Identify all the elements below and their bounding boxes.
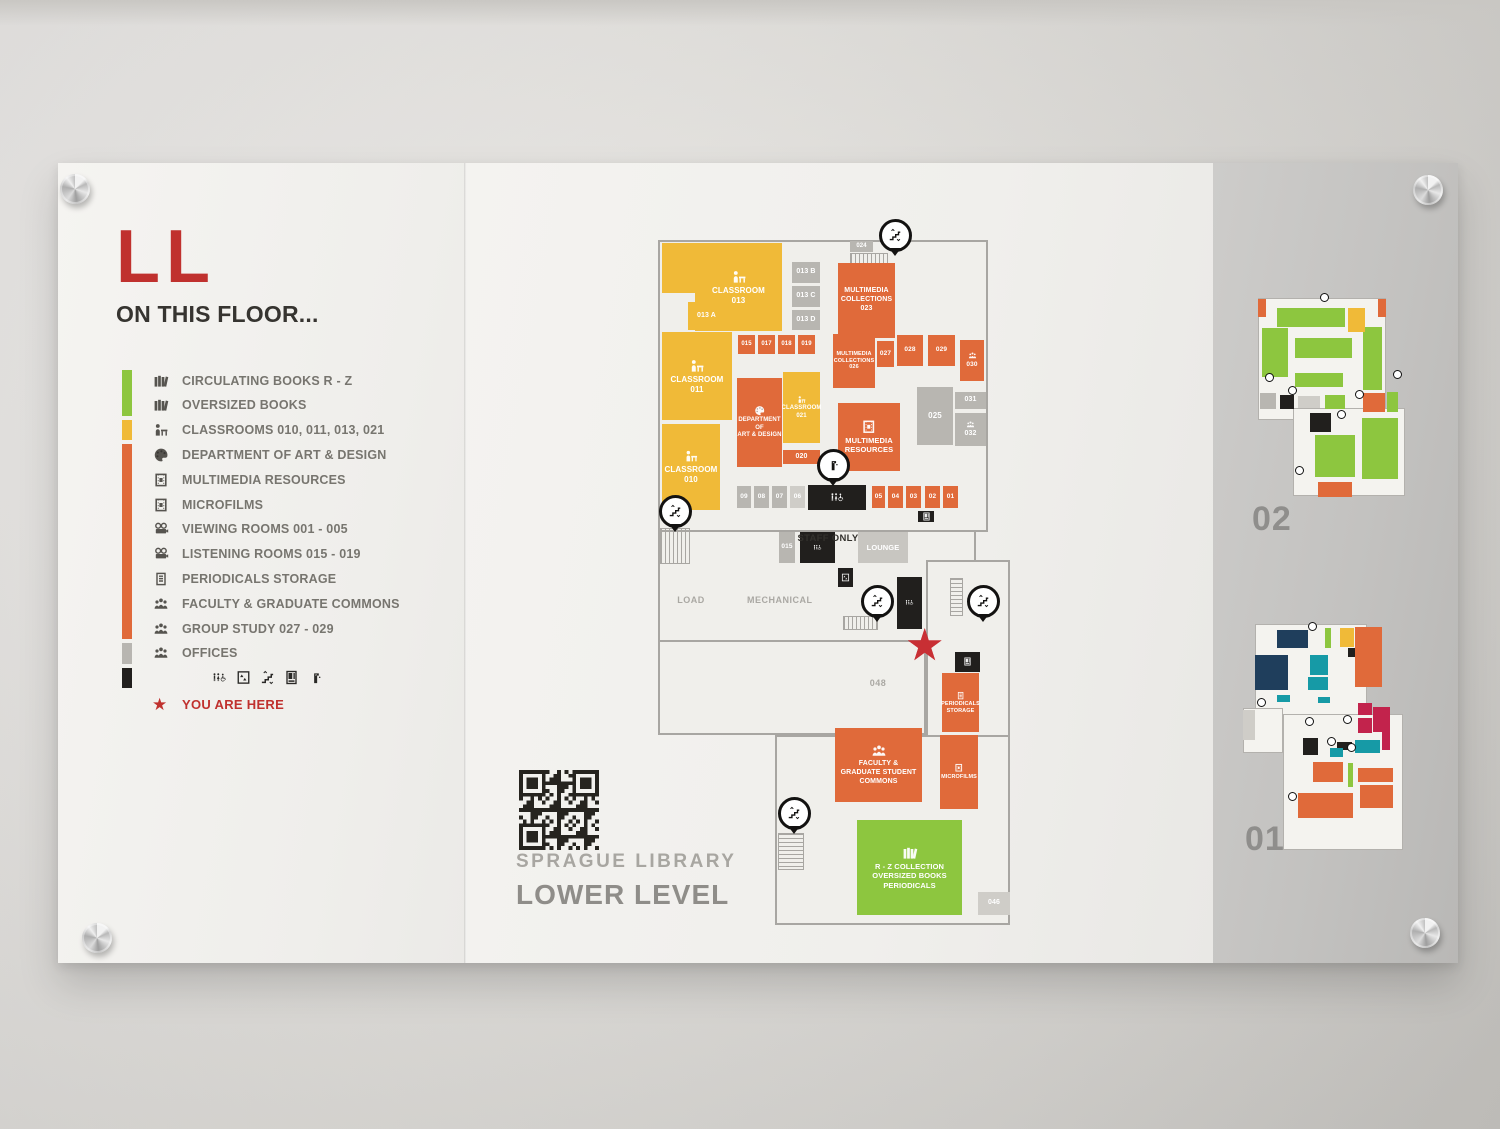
- legend-icon-wrap: [150, 596, 172, 612]
- film-icon: [954, 763, 964, 773]
- stairs-icon: [787, 806, 801, 820]
- minimap-pin: [1288, 792, 1297, 801]
- minimap-room-block: [1298, 793, 1353, 818]
- map-room: MULTIMEDIACOLLECTIONS023: [838, 263, 895, 338]
- legend-color-bar-orange: [122, 444, 132, 638]
- map-room-label: 020: [796, 453, 808, 462]
- legend-row: MICROFILMS: [116, 492, 446, 517]
- map-room: R - Z COLLECTIONOVERSIZED BOOKSPERIODICA…: [857, 820, 962, 915]
- minimap-pin: [1257, 698, 1266, 707]
- minimap-room-block: [1330, 748, 1343, 757]
- classroom-icon: [153, 422, 169, 438]
- books-icon: [902, 845, 918, 861]
- vending-icon: [284, 670, 299, 685]
- people-icon: [968, 351, 977, 360]
- legend-row: DEPARTMENT OF ART & DESIGN: [116, 442, 446, 467]
- minimap-room-block: [1260, 393, 1276, 409]
- map-area-label: 048: [853, 678, 903, 688]
- map-room: 032: [955, 413, 986, 446]
- map-room-label: STORAGE: [947, 708, 975, 715]
- map-room: [955, 652, 980, 672]
- map-room: 018: [778, 335, 795, 354]
- legend-icon-wrap: [150, 571, 172, 587]
- legend-item-label: OFFICES: [182, 646, 238, 660]
- vending-icon: [963, 657, 972, 666]
- map-room: 024: [850, 241, 873, 252]
- map-room: 05: [872, 486, 885, 508]
- legend-item-label: MULTIMEDIA RESOURCES: [182, 473, 346, 487]
- map-room: [838, 568, 853, 587]
- legend-icon-wrap: [150, 621, 172, 637]
- legend-row: VIEWING ROOMS 001 - 005: [116, 517, 446, 542]
- periodical-icon: [153, 571, 169, 587]
- minimap-pin: [1343, 715, 1352, 724]
- panel-seam: [464, 163, 467, 963]
- classroom-icon: [684, 449, 699, 464]
- film-icon: [153, 497, 169, 513]
- map-room-label: CLASSROOM: [782, 405, 822, 413]
- map-room-label: ART & DESIGN: [737, 432, 781, 440]
- legend-color-bar-gray_room: [122, 643, 132, 664]
- minimap-floor-label-02: 02: [1252, 500, 1292, 539]
- legend-row: LISTENING ROOMS 015 - 019: [116, 542, 446, 567]
- map-room: 020: [783, 450, 820, 464]
- legend-icon-wrap: [150, 447, 172, 463]
- minimap-room-block: [1310, 655, 1328, 675]
- minimap-room-block: [1360, 785, 1393, 808]
- map-pin-stairs: [659, 495, 692, 528]
- page-title: ON THIS FLOOR...: [116, 301, 319, 328]
- map-room-label: 046: [988, 899, 1000, 908]
- map-room-label: 015: [741, 341, 751, 349]
- map-room: 013 C: [792, 286, 820, 307]
- map-room-label: OVERSIZED BOOKS: [872, 871, 946, 880]
- vending-icon: [922, 512, 931, 521]
- legend-icon-wrap: [150, 373, 172, 389]
- projector-icon: [153, 521, 169, 537]
- minimap-room-block: [1277, 308, 1345, 327]
- minimap-room-block: [1358, 768, 1393, 782]
- people-icon: [153, 645, 169, 661]
- legend-row: CLASSROOMS 010, 011, 013, 021: [116, 418, 446, 443]
- standoff-bottom-left: [82, 923, 112, 953]
- legend-row: OVERSIZED BOOKS: [116, 393, 446, 418]
- map-room-label: 032: [965, 430, 977, 439]
- minimap-floor-02: [1258, 293, 1408, 503]
- map-room: 013 A: [688, 302, 725, 330]
- minimap-room-block: [1340, 628, 1354, 647]
- minimap-room-block: [1378, 299, 1386, 317]
- legend-row: GROUP STUDY 027 - 029: [116, 616, 446, 641]
- map-room: 027: [877, 341, 894, 367]
- map-area-label: LOAD: [671, 595, 711, 605]
- minimap-room-block: [1325, 628, 1331, 648]
- map-room-label: CLASSROOM: [671, 375, 724, 385]
- map-room: 028: [897, 335, 923, 366]
- minimap-pin: [1393, 370, 1402, 379]
- palette-icon: [754, 405, 765, 416]
- minimap-room-block: [1362, 418, 1398, 479]
- minimap-room-block: [1315, 435, 1355, 477]
- legend-row: FACULTY & GRADUATE COMMONS: [116, 591, 446, 616]
- map-room-label: R - Z COLLECTION: [875, 862, 944, 871]
- map-room-label: MICROFILMS: [941, 774, 977, 781]
- minimap-room-block: [1358, 718, 1372, 733]
- you-are-here-row: ★YOU ARE HERE: [116, 692, 446, 717]
- film-icon: [861, 419, 877, 435]
- fountain-icon: [826, 458, 840, 472]
- photo-of-library-floor-sign: { "sign": { "floor_code": "LL", "heading…: [0, 0, 1500, 1129]
- elevator-icon: [841, 573, 850, 582]
- restroom-icon: [905, 598, 914, 607]
- map-room-label: 024: [856, 243, 866, 251]
- legend-icon-wrap: [150, 546, 172, 562]
- people-icon: [153, 621, 169, 637]
- minimap-room-block: [1277, 630, 1308, 648]
- map-room-label: 09: [740, 493, 747, 501]
- map-room-label: CLASSROOM: [665, 465, 718, 475]
- map-room-label: 06: [794, 493, 801, 501]
- map-room-label: 07: [776, 493, 783, 501]
- legend-icon-wrap: [150, 472, 172, 488]
- periodical-icon: [956, 691, 965, 700]
- map-room-label: GRADUATE STUDENT: [841, 769, 917, 778]
- minimap-room-block: [1313, 762, 1343, 782]
- minimap-room-block: [1348, 763, 1353, 787]
- map-room: CLASSROOM011: [662, 332, 732, 420]
- legend-row: OFFICES: [116, 641, 446, 666]
- map-room-label: 027: [880, 350, 891, 358]
- map-room-label: 013 C: [796, 292, 815, 301]
- map-room-label: RESOURCES: [845, 445, 893, 454]
- minimap-pin: [1337, 410, 1346, 419]
- map-room: MICROFILMS: [940, 735, 978, 809]
- minimap-room-block: [1355, 627, 1382, 687]
- map-room-label: 019: [801, 341, 811, 349]
- map-room: 029: [928, 335, 955, 366]
- map-room: 046: [978, 892, 1010, 915]
- map-room: CLASSROOM021: [783, 372, 820, 443]
- minimap-room-block: [1325, 395, 1345, 409]
- map-room-label: 026: [849, 364, 858, 371]
- map-room-label: MULTIMEDIA: [836, 351, 871, 358]
- map-room: 025: [917, 387, 953, 445]
- minimap-room-block: [1295, 373, 1343, 387]
- legend-icon-wrap: [150, 497, 172, 513]
- legend-icon-wrap: [150, 645, 172, 661]
- map-room-label: 017: [761, 341, 771, 349]
- classroom-icon: [689, 358, 705, 374]
- map-room: FACULTY &GRADUATE STUDENTCOMMONS: [835, 728, 922, 802]
- you-are-here-star-icon: ★: [152, 696, 167, 713]
- minimap-room-block: [1318, 697, 1330, 703]
- legend-item-label: MICROFILMS: [182, 498, 263, 512]
- map-room-label: 08: [758, 493, 765, 501]
- stairs-hatch: [950, 578, 963, 616]
- map-room-label: 01: [947, 493, 954, 501]
- books-icon: [153, 373, 169, 389]
- minimap-pin: [1288, 386, 1297, 395]
- map-room-label: 028: [904, 346, 915, 354]
- minimap-floor-label-01: 01: [1245, 820, 1285, 859]
- minimap-room-block: [1262, 328, 1288, 377]
- you-are-here-label: YOU ARE HERE: [182, 697, 284, 712]
- map-room-label: 021: [796, 413, 806, 421]
- minimap-room-block: [1363, 393, 1385, 412]
- map-room: 015: [779, 532, 795, 563]
- map-room: 013 D: [792, 310, 820, 330]
- you-are-here-marker: ★: [905, 624, 944, 668]
- map-room: 02: [925, 486, 940, 508]
- minimap-room-block: [1308, 677, 1328, 690]
- minimap-room-block: [1303, 738, 1318, 755]
- palette-icon: [153, 447, 169, 463]
- map-room-label: DEPARTMENT: [738, 417, 780, 425]
- amenity-icon-row: [212, 670, 323, 685]
- minimap-room-block: [1258, 299, 1266, 317]
- books-icon: [153, 397, 169, 413]
- map-room: 07: [772, 486, 787, 508]
- map-room: DEPARTMENTOFART & DESIGN: [737, 378, 782, 467]
- restroom-icon: [830, 490, 845, 505]
- map-room: 09: [737, 486, 751, 508]
- map-room: 04: [888, 486, 903, 508]
- legend-item-label: DEPARTMENT OF ART & DESIGN: [182, 448, 387, 462]
- minimap-pin: [1308, 622, 1317, 631]
- minimap-pin: [1305, 717, 1314, 726]
- legend-row: MULTIMEDIA RESOURCES: [116, 467, 446, 492]
- stairs-icon: [870, 594, 884, 608]
- map-room: 06: [790, 486, 805, 508]
- minimap-pin: [1347, 743, 1356, 752]
- map-room-label: 031: [965, 396, 977, 405]
- map-room: 031: [955, 392, 986, 409]
- elevator-icon: [236, 670, 251, 685]
- minimap-pin: [1265, 373, 1274, 382]
- minimap-room-block: [1348, 308, 1365, 332]
- minimap-room-block: [1277, 695, 1290, 702]
- stairs-icon: [888, 228, 902, 242]
- minimap-room-block: [1280, 395, 1294, 409]
- minimap-room-block: [1387, 392, 1398, 412]
- map-room-label: 04: [892, 493, 899, 501]
- minimap-room-block: [1243, 710, 1255, 740]
- map-room-label: 010: [684, 475, 698, 485]
- map-room-label: 030: [966, 361, 977, 369]
- map-room: [662, 243, 696, 293]
- map-room-label: 013 D: [796, 316, 815, 325]
- legend-row: CIRCULATING BOOKS R - Z: [116, 368, 446, 393]
- map-pin-stairs: [861, 585, 894, 618]
- minimap-pin: [1295, 466, 1304, 475]
- map-room-label: COLLECTIONS: [841, 296, 892, 305]
- stairs-icon: [260, 670, 275, 685]
- legend-row: PERIODICALS STORAGE: [116, 566, 446, 591]
- map-room-label: COMMONS: [859, 778, 897, 787]
- stairs-icon: [668, 504, 682, 518]
- map-area-label: MECHANICAL: [747, 595, 809, 605]
- minimap-pin: [1355, 390, 1364, 399]
- map-room-label: COLLECTIONS: [834, 358, 875, 365]
- map-room: 015: [738, 335, 755, 354]
- map-room-label: 029: [936, 346, 947, 354]
- map-room-label: PERIODICALS: [883, 881, 935, 890]
- map-room-label: 05: [875, 493, 882, 501]
- classroom-icon: [731, 269, 747, 285]
- classroom-icon: [797, 395, 806, 404]
- projector-icon: [153, 546, 169, 562]
- minimap-room-block: [1355, 740, 1380, 753]
- map-area-label: STAFF ONLY: [797, 533, 859, 544]
- legend-item-label: FACULTY & GRADUATE COMMONS: [182, 597, 400, 611]
- map-room: 08: [754, 486, 769, 508]
- map-room: PERIODICALSSTORAGE: [942, 673, 979, 732]
- legend-color-bar-green: [122, 370, 132, 416]
- standoff-top-right: [1413, 175, 1443, 205]
- map-room-label: 015: [781, 543, 792, 551]
- map-room-label: 013: [732, 296, 746, 306]
- map-pin-stairs: [778, 797, 811, 830]
- minimap-room-block: [1255, 655, 1288, 690]
- map-room-label: 013 B: [796, 268, 815, 277]
- map-room-label: 023: [861, 305, 873, 314]
- map-room-label: LOUNGE: [867, 543, 900, 552]
- map-room-label: MULTIMEDIA: [844, 287, 888, 296]
- legend-color-bar-yellow: [122, 420, 132, 441]
- floor-directory-sign: LL ON THIS FLOOR... CIRCULATING BOOKS R …: [58, 163, 1458, 963]
- minimap-room-block: [1298, 396, 1320, 408]
- stairs-icon: [976, 594, 990, 608]
- minimap-room-block: [1295, 338, 1352, 358]
- map-room: [918, 511, 934, 522]
- map-room: 017: [758, 335, 775, 354]
- fountain-icon: [308, 670, 323, 685]
- map-room: 030: [960, 340, 984, 381]
- minimap-room-block: [1373, 707, 1390, 732]
- standoff-bottom-right: [1410, 918, 1440, 948]
- map-room: 01: [943, 486, 958, 508]
- map-room-label: 013 A: [697, 312, 716, 321]
- legend-item-label: OVERSIZED BOOKS: [182, 398, 307, 412]
- map-room: MULTIMEDIACOLLECTIONS026: [833, 334, 875, 388]
- legend-icon-wrap: [150, 422, 172, 438]
- map-room-label: 025: [928, 411, 942, 421]
- people-icon: [871, 743, 887, 759]
- minimap-room-block: [1382, 730, 1390, 750]
- legend-item-label: PERIODICALS STORAGE: [182, 572, 336, 586]
- library-name: SPRAGUE LIBRARY: [516, 851, 736, 873]
- map-room: 03: [906, 486, 921, 508]
- map-room-label: OF: [755, 425, 764, 433]
- minimap-room-block: [1358, 703, 1372, 715]
- legend-item-label: VIEWING ROOMS 001 - 005: [182, 522, 348, 536]
- level-name: LOWER LEVEL: [516, 879, 729, 911]
- legend-icon-wrap: [150, 521, 172, 537]
- map-room-label: CLASSROOM: [712, 286, 765, 296]
- ceiling-shadow: [0, 0, 1500, 26]
- map-room-label: PERIODICALS: [941, 701, 980, 708]
- floor-map: CLASSROOM013013 ACLASSROOM011CLASSROOM01…: [658, 228, 1010, 928]
- map-room-label: FACULTY &: [859, 760, 899, 769]
- minimap-room-block: [1318, 482, 1352, 497]
- people-icon: [153, 596, 169, 612]
- restroom-icon: [212, 670, 227, 685]
- minimap-pin: [1320, 293, 1329, 302]
- legend-item-label: GROUP STUDY 027 - 029: [182, 622, 334, 636]
- legend-item-label: CLASSROOMS 010, 011, 013, 021: [182, 423, 384, 437]
- legend-item-label: CIRCULATING BOOKS R - Z: [182, 374, 352, 388]
- map-pin-stairs: [967, 585, 1000, 618]
- map-room-label: 011: [690, 385, 703, 395]
- legend-item-label: LISTENING ROOMS 015 - 019: [182, 547, 361, 561]
- map-room: LOUNGE: [858, 532, 908, 563]
- minimap-floor-01: [1243, 618, 1403, 850]
- map-pin-fountain: [817, 449, 850, 482]
- map-pin-stairs: [879, 219, 912, 252]
- map-room: 019: [798, 335, 815, 354]
- standoff-top-left: [60, 174, 90, 204]
- map-room-label: 02: [929, 493, 936, 501]
- minimap-room-block: [1348, 648, 1355, 657]
- minimap-room-block: [1363, 327, 1382, 390]
- qr-code: [517, 770, 601, 850]
- film-icon: [153, 472, 169, 488]
- map-room-label: 018: [781, 341, 791, 349]
- legend-color-bar-black: [122, 668, 132, 689]
- map-room: 013 B: [792, 262, 820, 283]
- floor-code: LL: [116, 219, 216, 295]
- map-room-label: MULTIMEDIA: [845, 436, 893, 445]
- legend-icon-wrap: [150, 397, 172, 413]
- minimap-room-block: [1310, 413, 1331, 432]
- people-icon: [966, 420, 975, 429]
- map-room-label: 03: [910, 493, 917, 501]
- minimap-pin: [1327, 737, 1336, 746]
